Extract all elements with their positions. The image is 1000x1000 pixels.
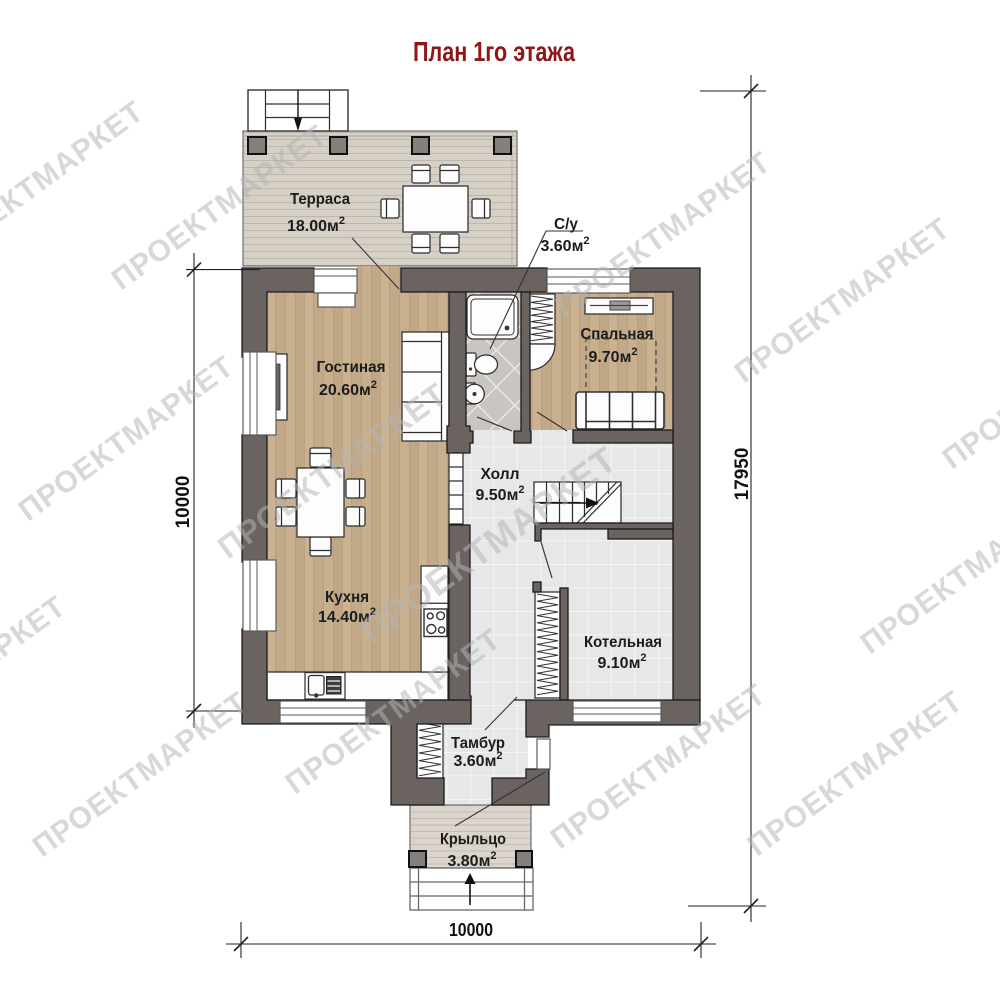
svg-text:3.80м2: 3.80м2 <box>447 850 496 870</box>
svg-text:ПРОЕКТМАРКЕТ: ПРОЕКТМАРКЕТ <box>742 685 969 863</box>
svg-text:ПРОЕКТМАРКЕТ: ПРОЕКТМАРКЕТ <box>729 212 956 390</box>
svg-text:17950: 17950 <box>732 448 753 501</box>
svg-text:ПРОЕКТМАРКЕТ: ПРОЕКТМАРКЕТ <box>27 686 254 864</box>
svg-text:10000: 10000 <box>173 476 194 529</box>
svg-text:Крыльцо: Крыльцо <box>440 831 506 848</box>
svg-text:9.10м2: 9.10м2 <box>597 652 646 672</box>
svg-text:3.60м2: 3.60м2 <box>453 750 502 770</box>
svg-text:3.60м2: 3.60м2 <box>540 235 589 255</box>
svg-text:Котельная: Котельная <box>584 634 662 651</box>
svg-text:10000: 10000 <box>449 920 493 940</box>
svg-text:ПРОЕКТМАРКЕТ: ПРОЕКТМАРКЕТ <box>855 483 1000 661</box>
svg-text:Спальная: Спальная <box>581 326 654 343</box>
svg-text:ПРОЕКТМАРКЕТ: ПРОЕКТМАРКЕТ <box>937 298 1000 476</box>
svg-text:Терраса: Терраса <box>290 191 350 208</box>
svg-text:Кухня: Кухня <box>325 589 369 606</box>
svg-text:9.70м2: 9.70м2 <box>588 346 637 366</box>
svg-text:ПРОЕКТМАРКЕТ: ПРОЕКТМАРКЕТ <box>13 350 240 528</box>
svg-text:Гостиная: Гостиная <box>317 359 386 376</box>
svg-text:ПРОЕКТМАРКЕТ: ПРОЕКТМАРКЕТ <box>0 95 150 273</box>
svg-text:План 1го этажа: План 1го этажа <box>413 36 575 67</box>
svg-text:ПРОЕКТМАРКЕТ: ПРОЕКТМАРКЕТ <box>0 590 72 768</box>
svg-text:20.60м2: 20.60м2 <box>319 379 377 399</box>
svg-text:Холл: Холл <box>481 466 520 483</box>
svg-text:18.00м2: 18.00м2 <box>287 215 345 235</box>
